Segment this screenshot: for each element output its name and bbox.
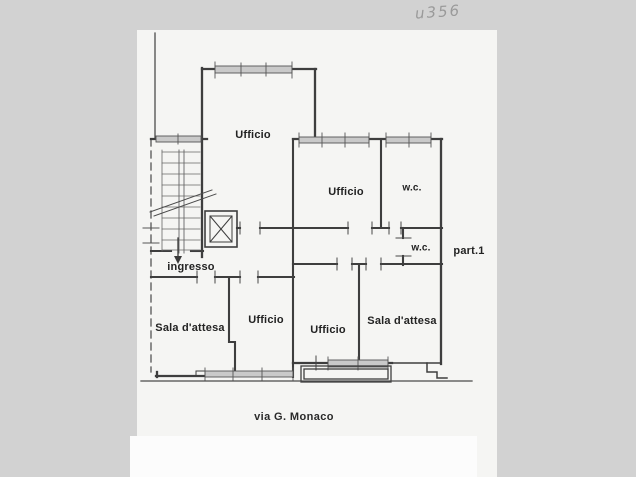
handwritten-annotation: u356: [414, 1, 461, 22]
elevator: [205, 211, 237, 247]
room-label-ingresso: ingresso: [167, 261, 214, 273]
room-label-sala-attesa-left: Sala d'attesa: [155, 322, 224, 334]
room-label-ufficio-middle: Ufficio: [328, 186, 364, 198]
room-label-ufficio-bottom-left: Ufficio: [248, 314, 284, 326]
scanned-floorplan-page: Ufficio Ufficio w.c. w.c. ingresso Sala …: [0, 0, 636, 477]
room-label-sala-attesa-right: Sala d'attesa: [367, 315, 436, 327]
unit-label: part.1: [453, 245, 484, 257]
corner-steps: [392, 363, 447, 378]
staircase: [150, 150, 216, 253]
room-label-ufficio-bottom-middle: Ufficio: [310, 324, 346, 336]
floorplan-drawing: [0, 0, 636, 477]
street-label: via G. Monaco: [254, 411, 334, 423]
room-label-wc-corridor: w.c.: [411, 243, 430, 254]
balcony: [301, 366, 391, 382]
room-label-wc-top: w.c.: [402, 183, 421, 194]
interior-walls: [151, 139, 442, 377]
room-label-ufficio-top: Ufficio: [235, 129, 271, 141]
